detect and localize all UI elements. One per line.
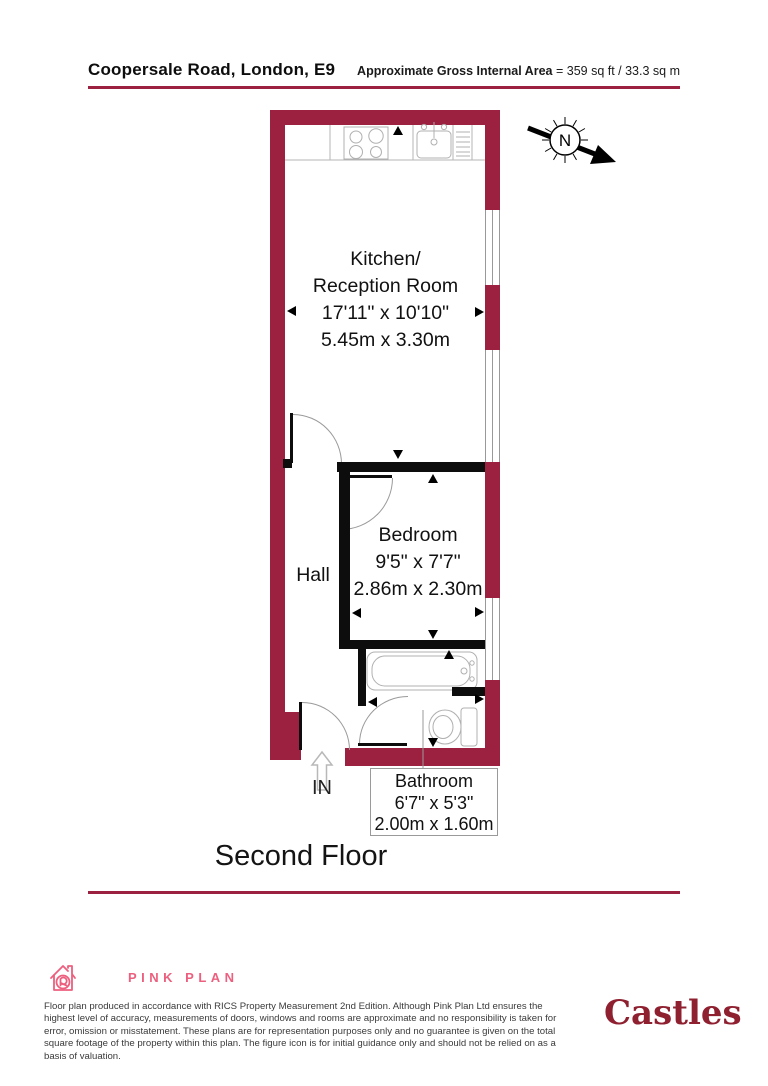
floorplan-page: Coopersale Road, London, E9 Approximate … [0, 0, 768, 1086]
room-size-metric: 2.86m x 2.30m [351, 576, 485, 603]
entrance-in-label: IN [294, 777, 350, 800]
property-address: Coopersale Road, London, E9 [88, 60, 335, 80]
wall-bathroom-left [358, 649, 366, 706]
hob-icon [344, 127, 388, 159]
top-divider [88, 86, 680, 89]
room-name: Bathroom [371, 771, 497, 793]
measure-arrow [352, 608, 361, 618]
gross-internal-area: Approximate Gross Internal Area = 359 sq… [357, 64, 680, 78]
bedroom-label: Bedroom 9'5" x 7'7" 2.86m x 2.30m [351, 522, 485, 603]
room-name: Bedroom [351, 522, 485, 549]
sink-icon [417, 122, 470, 158]
room-name: Kitchen/ [285, 246, 486, 273]
area-label: Approximate Gross Internal Area [357, 64, 552, 78]
disclaimer-text: Floor plan produced in accordance with R… [44, 1001, 560, 1063]
kitchen-counter [285, 125, 485, 160]
room-size-metric: 5.45m x 3.30m [285, 327, 486, 354]
castles-logo: Castles [604, 993, 740, 1033]
measure-arrow [475, 694, 484, 704]
measure-arrow [428, 738, 438, 747]
door-leaf-entrance [299, 702, 302, 750]
compass-north-label: N [559, 131, 571, 150]
bottom-divider [88, 891, 680, 894]
pinkplan-house-icon [46, 961, 80, 995]
area-value: = 359 sq ft / 33.3 sq m [556, 64, 680, 78]
wall-kitchen-bedroom [337, 462, 485, 472]
north-compass-icon: N [520, 108, 620, 178]
kitchen-label: Kitchen/ Reception Room 17'11" x 10'10" … [285, 246, 486, 354]
room-size-metric: 2.00m x 1.60m [371, 814, 497, 836]
wall-hall-bedroom [339, 472, 350, 649]
hall-label: Hall [282, 562, 344, 589]
measure-arrow [393, 126, 403, 135]
header: Coopersale Road, London, E9 Approximate … [88, 60, 680, 80]
measure-arrow [393, 450, 403, 459]
room-name: Hall [282, 562, 344, 589]
bathroom-label: Bathroom 6'7" x 5'3" 2.00m x 1.60m [370, 768, 498, 836]
pinkplan-wordmark: PINK PLAN [128, 970, 239, 985]
room-size-imperial: 17'11" x 10'10" [285, 300, 486, 327]
room-size-imperial: 6'7" x 5'3" [371, 793, 497, 815]
room-name: Reception Room [285, 273, 486, 300]
measure-arrow [444, 650, 454, 659]
measure-arrow [368, 697, 377, 707]
door-hinge-hall [283, 459, 292, 468]
fixtures-layer [270, 110, 500, 800]
door-leaf-hall [290, 413, 293, 463]
measure-arrow [428, 474, 438, 483]
measure-arrow [428, 630, 438, 639]
door-leaf-bathroom [358, 743, 407, 746]
bathtub-icon [367, 652, 477, 690]
door-leaf-bedroom [340, 475, 392, 478]
floor-title: Second Floor [150, 840, 452, 873]
room-size-imperial: 9'5" x 7'7" [351, 549, 485, 576]
wall-bathroom-top [339, 640, 485, 649]
measure-arrow [475, 607, 484, 617]
